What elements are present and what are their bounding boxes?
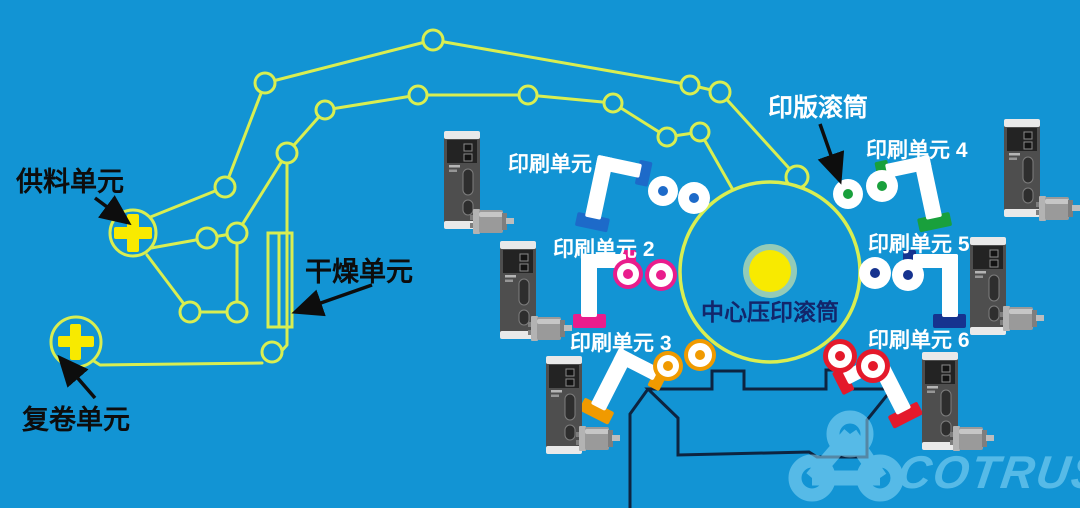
unit1-anilox-roller — [648, 176, 678, 206]
unit2-anilox-roller — [613, 259, 643, 289]
unit4-plate-cylinder — [833, 179, 863, 209]
unit4-label: 印刷单元 4 — [866, 138, 968, 162]
unit3-plate-cylinder — [684, 339, 716, 371]
unit3-anilox-roller — [653, 351, 683, 381]
supply-reel — [110, 210, 156, 256]
drying-unit-label: 干燥单元 — [305, 257, 413, 287]
unit4-anilox-roller — [866, 170, 898, 202]
unit5-plate-cylinder — [859, 257, 891, 289]
unit6-anilox-roller — [856, 349, 890, 383]
unit6-label: 印刷单元 6 — [868, 328, 970, 352]
cotrust-logo-text: COTRUST — [895, 446, 1080, 498]
unit1-label: 印刷单元 1 — [508, 152, 610, 176]
unit3-label: 印刷单元 3 — [570, 331, 672, 355]
central-cylinder-label: 中心压印滚筒 — [701, 299, 839, 325]
cylinder-core — [749, 250, 791, 292]
unit5-anilox-roller — [892, 259, 924, 291]
unit1-plate-cylinder — [678, 182, 710, 214]
diagram-canvas: 中心压印滚筒 印刷单元 1 印刷单元 2 印刷单元 3 — [0, 0, 1080, 508]
plate-cylinder-label: 印版滚筒 — [768, 93, 868, 122]
flexo-press-diagram: 中心压印滚筒 印刷单元 1 印刷单元 2 印刷单元 3 — [0, 0, 1080, 508]
central-impression-cylinder: 中心压印滚筒 — [680, 182, 860, 362]
rewind-reel — [51, 317, 101, 367]
rewind-unit-label: 复卷单元 — [22, 405, 130, 435]
unit6-plate-cylinder — [823, 339, 857, 373]
supply-unit-label: 供料单元 — [15, 167, 124, 197]
unit5-label: 印刷单元 5 — [868, 232, 970, 256]
unit2-label: 印刷单元 2 — [553, 237, 655, 261]
servo-drive-4 — [1004, 119, 1040, 217]
servo-drive-3 — [546, 356, 582, 454]
unit2-plate-cylinder — [645, 259, 677, 291]
